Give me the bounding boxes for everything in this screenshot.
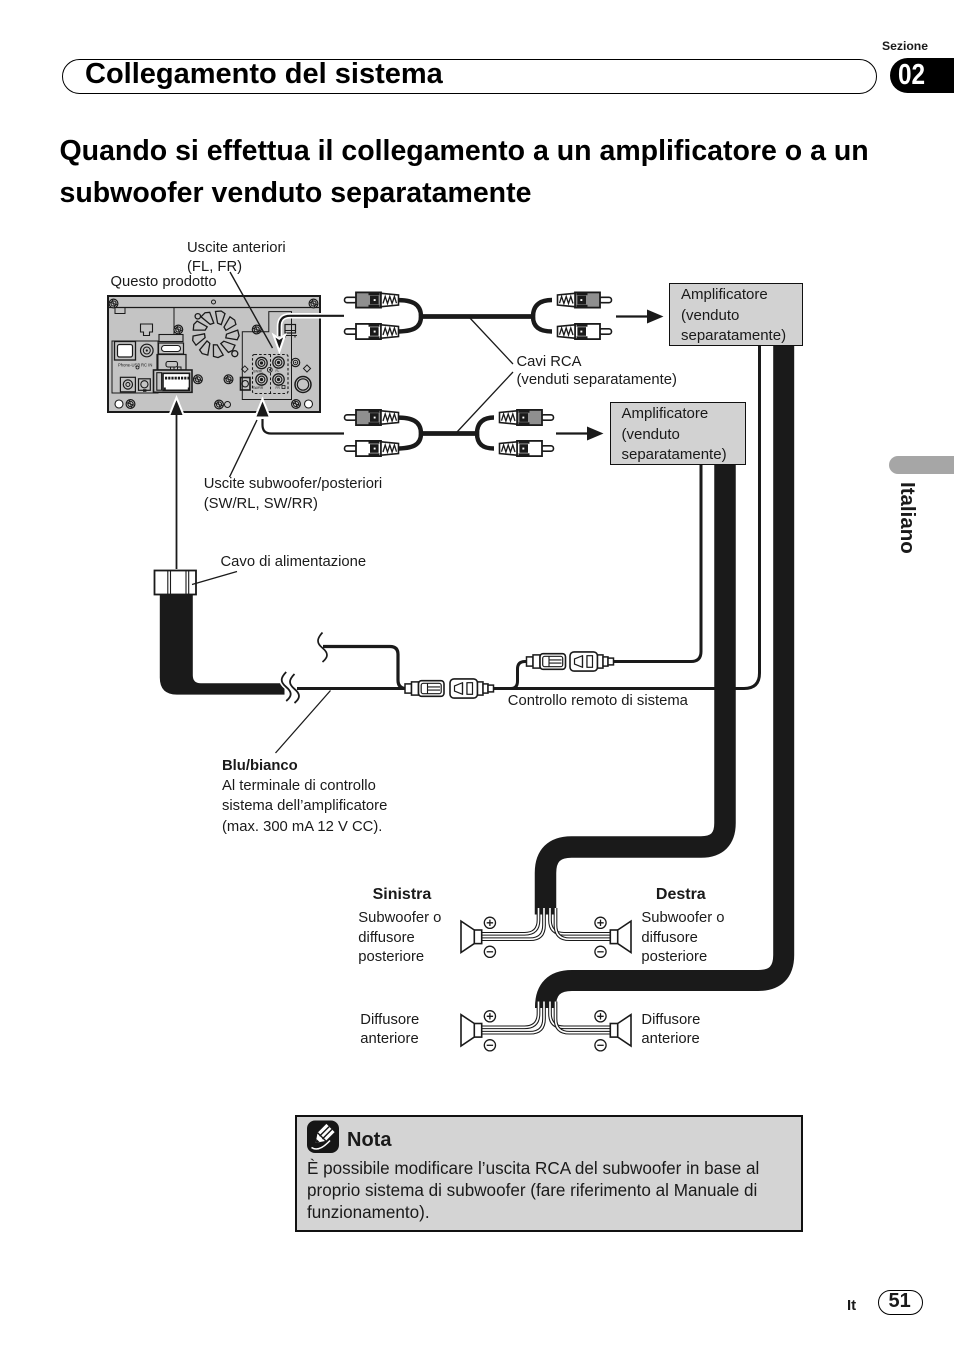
svg-text:RC IN: RC IN: [141, 363, 152, 368]
svg-text:Phone-USB: Phone-USB: [118, 363, 140, 368]
svg-text:FR: FR: [276, 386, 281, 390]
svg-text:SW/RL: SW/RL: [253, 370, 263, 374]
svg-text:SW/RR: SW/RR: [253, 386, 264, 390]
svg-text:FL: FL: [276, 369, 280, 373]
